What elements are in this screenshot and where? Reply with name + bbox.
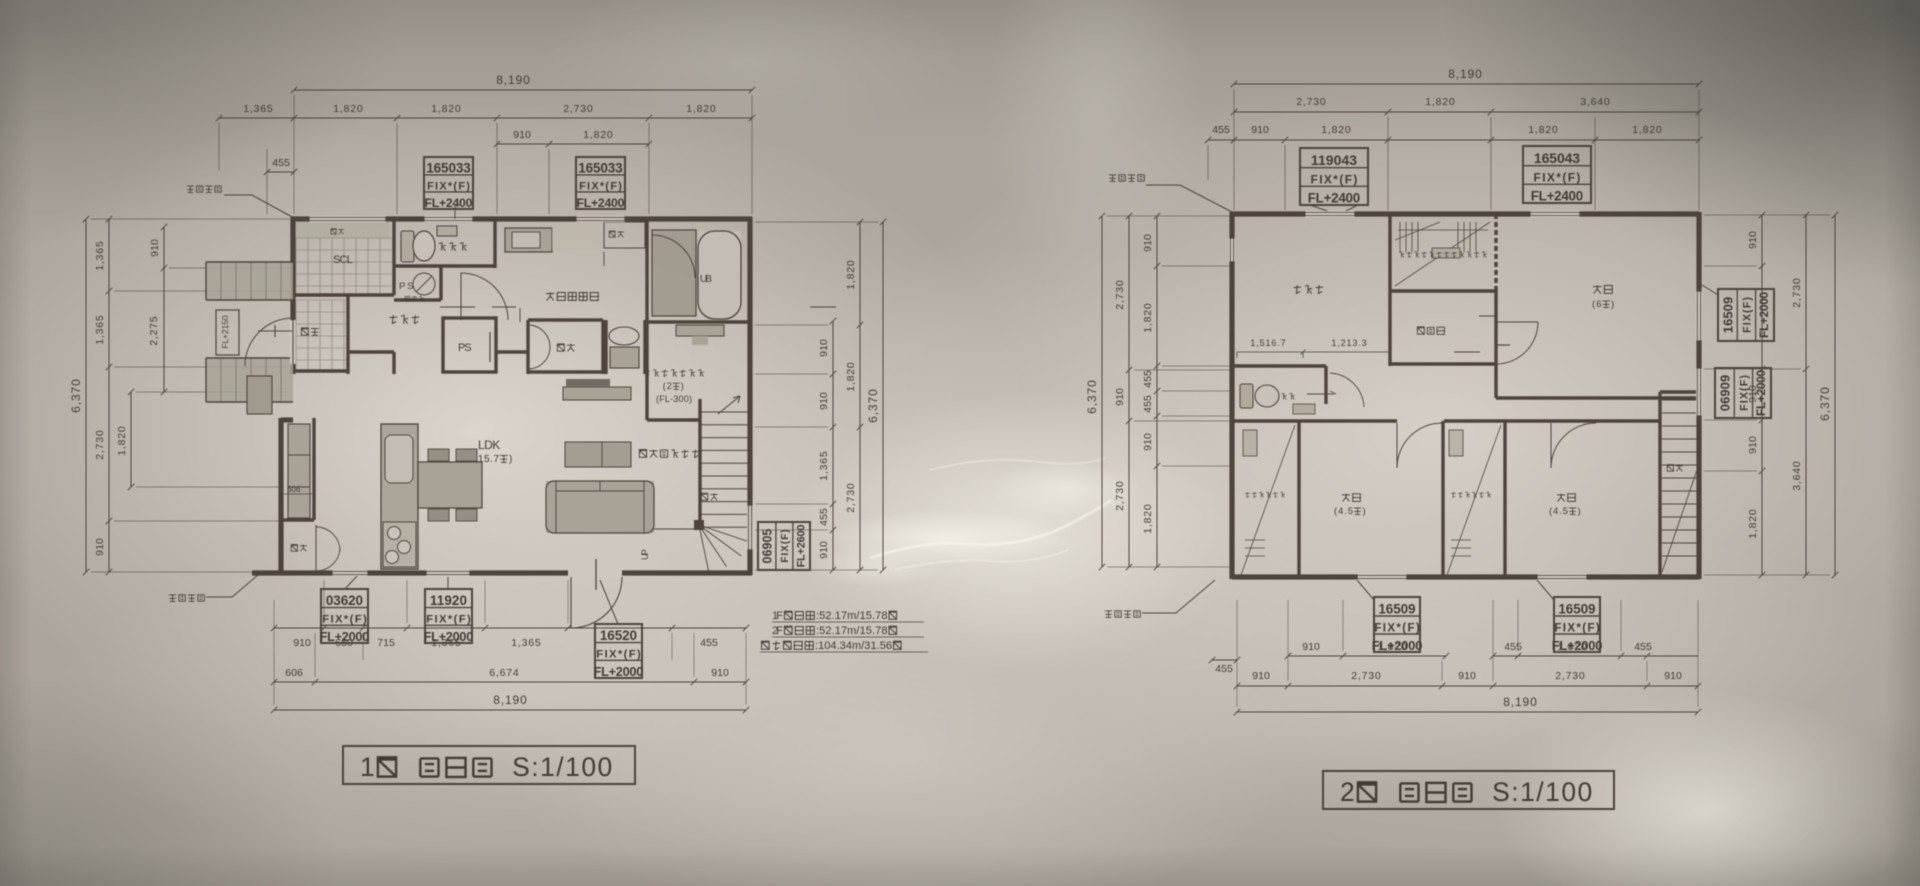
svg-text:(4.5: (4.5: [1549, 506, 1568, 517]
svg-text:910: 910: [1114, 388, 1126, 406]
svg-text:FIX(F): FIX(F): [1739, 375, 1751, 411]
svg-text:910: 910: [293, 637, 311, 649]
svg-text:03620: 03620: [326, 593, 363, 608]
svg-text:606: 606: [287, 485, 301, 494]
svg-text:UB: UB: [700, 274, 712, 285]
svg-text:1,820: 1,820: [1142, 303, 1154, 333]
svg-text:455: 455: [700, 637, 718, 649]
svg-text:910: 910: [1252, 670, 1270, 682]
svg-text:FIX(F): FIX(F): [1742, 297, 1754, 333]
svg-text:1,365: 1,365: [818, 451, 830, 481]
svg-text:3,640: 3,640: [1580, 96, 1610, 108]
svg-text:2: 2: [1340, 777, 1355, 807]
svg-text:FL+2000: FL+2000: [424, 630, 474, 644]
svg-text:S:1/100: S:1/100: [512, 752, 612, 782]
svg-text:06909: 06909: [1718, 375, 1733, 411]
svg-text:2,730: 2,730: [1114, 481, 1126, 511]
svg-text:): ): [1611, 299, 1614, 310]
svg-text:3,640: 3,640: [1791, 461, 1803, 491]
svg-text:6,370: 6,370: [1818, 387, 1832, 421]
svg-text:1,820: 1,820: [1321, 124, 1351, 136]
svg-text:910: 910: [1458, 670, 1476, 682]
svg-text:6,370: 6,370: [69, 379, 83, 413]
svg-text:FL+2400: FL+2400: [577, 196, 625, 210]
svg-text:1,820: 1,820: [686, 103, 716, 115]
svg-text:8,190: 8,190: [496, 73, 530, 87]
svg-text:1,820: 1,820: [431, 103, 461, 115]
svg-text:1,213.3: 1,213.3: [1331, 338, 1366, 348]
svg-text:FL+2000: FL+2000: [1372, 638, 1423, 653]
svg-text:FIX*(F): FIX*(F): [579, 180, 622, 192]
svg-text:1,365: 1,365: [94, 315, 106, 345]
svg-text:FIX*(F): FIX*(F): [596, 649, 641, 661]
svg-text:6,370: 6,370: [866, 389, 880, 423]
svg-text:FIX*(F): FIX*(F): [1311, 173, 1358, 187]
svg-text:910: 910: [711, 667, 729, 679]
svg-text:165033: 165033: [426, 161, 471, 176]
svg-text:910: 910: [818, 339, 830, 357]
svg-text:1,820: 1,820: [1528, 124, 1558, 136]
svg-text:): ): [509, 454, 512, 465]
svg-text:): ): [1363, 506, 1366, 517]
svg-text:910: 910: [94, 538, 106, 556]
svg-text:1,820: 1,820: [1632, 124, 1662, 136]
svg-text:06905: 06905: [761, 529, 775, 564]
svg-text:910: 910: [1142, 433, 1154, 451]
svg-text:FL+2150: FL+2150: [220, 315, 230, 349]
svg-text:FL+2400: FL+2400: [1308, 191, 1361, 206]
svg-text:FL+2000: FL+2000: [1754, 369, 1768, 416]
svg-text:1,820: 1,820: [1425, 96, 1455, 108]
svg-text:8,190: 8,190: [1448, 67, 1482, 81]
svg-text:6,370: 6,370: [1085, 380, 1099, 414]
svg-text:1,820: 1,820: [845, 260, 857, 290]
svg-text:): ): [1578, 506, 1581, 517]
svg-text:1,820: 1,820: [583, 129, 613, 141]
svg-text:): ): [681, 381, 684, 391]
svg-text:455: 455: [1142, 370, 1154, 388]
svg-text:16520: 16520: [600, 628, 637, 643]
svg-text::52.17m/15.78: :52.17m/15.78: [816, 610, 888, 622]
svg-text:715: 715: [377, 637, 395, 649]
svg-text:2,730: 2,730: [1791, 278, 1803, 308]
svg-text:LDK: LDK: [478, 438, 500, 452]
svg-text:910: 910: [1747, 231, 1759, 249]
svg-text:S:1/100: S:1/100: [1492, 777, 1592, 807]
svg-text:1,820: 1,820: [1142, 504, 1154, 534]
svg-text:606: 606: [285, 667, 303, 679]
svg-text:2,275: 2,275: [148, 316, 160, 346]
svg-text:910: 910: [513, 129, 531, 141]
svg-text:FIX*(F): FIX*(F): [322, 614, 367, 626]
svg-text:FIX*(F): FIX*(F): [427, 180, 470, 192]
svg-text:1,820: 1,820: [333, 103, 363, 115]
svg-text:1,365: 1,365: [511, 637, 541, 649]
svg-text:FIX*(F): FIX*(F): [1554, 622, 1599, 634]
svg-text:PS: PS: [458, 342, 472, 354]
svg-text:6,674: 6,674: [489, 667, 519, 679]
svg-text:2,730: 2,730: [1296, 96, 1326, 108]
svg-text:910: 910: [1251, 124, 1269, 136]
svg-text:16509: 16509: [1558, 602, 1595, 617]
svg-text:8,190: 8,190: [1503, 695, 1537, 709]
svg-text:1,365: 1,365: [243, 103, 273, 115]
svg-text:910: 910: [149, 239, 161, 257]
svg-text:(FL-300): (FL-300): [656, 394, 692, 404]
svg-text:1F: 1F: [772, 610, 783, 622]
svg-text:2,730: 2,730: [94, 430, 106, 460]
svg-text:FIX(F): FIX(F): [780, 529, 791, 562]
svg-text:119043: 119043: [1311, 152, 1357, 168]
svg-text::52.17m/15.78: :52.17m/15.78: [816, 625, 888, 637]
svg-text:1,820: 1,820: [116, 426, 128, 456]
svg-text:(2: (2: [663, 381, 672, 391]
svg-text:(4.5: (4.5: [1334, 506, 1353, 517]
svg-text:UP: UP: [640, 549, 650, 560]
svg-text:1,365: 1,365: [94, 241, 106, 271]
svg-text:FL+2000: FL+2000: [320, 630, 370, 644]
svg-text:455: 455: [1215, 663, 1233, 675]
svg-text:FL+2000: FL+2000: [1757, 291, 1771, 338]
svg-text:2,730: 2,730: [1555, 670, 1585, 682]
svg-text:165043: 165043: [1534, 150, 1580, 166]
svg-text:2,730: 2,730: [563, 103, 593, 115]
svg-text:1,516.7: 1,516.7: [1250, 338, 1285, 348]
svg-text:P: P: [399, 281, 405, 292]
svg-text::104.34m/31.56: :104.34m/31.56: [815, 640, 892, 652]
svg-text:910: 910: [818, 541, 830, 559]
svg-text:910: 910: [1664, 670, 1682, 682]
svg-text:FL+2000: FL+2000: [1552, 638, 1603, 653]
svg-text:910: 910: [1302, 641, 1320, 653]
svg-text:FL+2000: FL+2000: [594, 665, 644, 679]
svg-text:910: 910: [1747, 436, 1759, 454]
svg-text:910: 910: [1142, 234, 1154, 252]
svg-text:FL+2400: FL+2400: [1531, 189, 1584, 204]
svg-text:FIX*(F): FIX*(F): [1534, 171, 1581, 185]
svg-text:FL+2400: FL+2400: [425, 196, 473, 210]
svg-text:16509: 16509: [1378, 602, 1415, 617]
svg-text:FL+2600: FL+2600: [795, 525, 807, 568]
svg-text:455: 455: [818, 508, 830, 526]
svg-text:16509: 16509: [1721, 297, 1736, 333]
svg-text:8,190: 8,190: [493, 693, 527, 707]
svg-text:165033: 165033: [578, 161, 623, 176]
svg-text:2,730: 2,730: [1114, 280, 1126, 310]
svg-text:2,730: 2,730: [845, 483, 857, 513]
svg-text:1,820: 1,820: [1747, 509, 1759, 539]
svg-text:S: S: [407, 281, 413, 292]
svg-text:455: 455: [1212, 124, 1230, 136]
svg-text:2F: 2F: [772, 625, 783, 637]
svg-text:SCL: SCL: [333, 254, 353, 266]
svg-text:FIX*(F): FIX*(F): [1374, 622, 1419, 634]
svg-text:455: 455: [1634, 641, 1652, 653]
svg-text:1: 1: [360, 752, 375, 782]
svg-text:1,820: 1,820: [845, 362, 857, 392]
svg-text:455: 455: [1142, 395, 1154, 413]
svg-text:2,730: 2,730: [1351, 670, 1381, 682]
svg-text:455: 455: [272, 157, 290, 169]
svg-text:FIX*(F): FIX*(F): [426, 614, 471, 626]
svg-text:11920: 11920: [430, 593, 467, 608]
svg-text:(6: (6: [1592, 299, 1602, 310]
svg-text:910: 910: [818, 392, 830, 410]
svg-text:455: 455: [1504, 641, 1522, 653]
